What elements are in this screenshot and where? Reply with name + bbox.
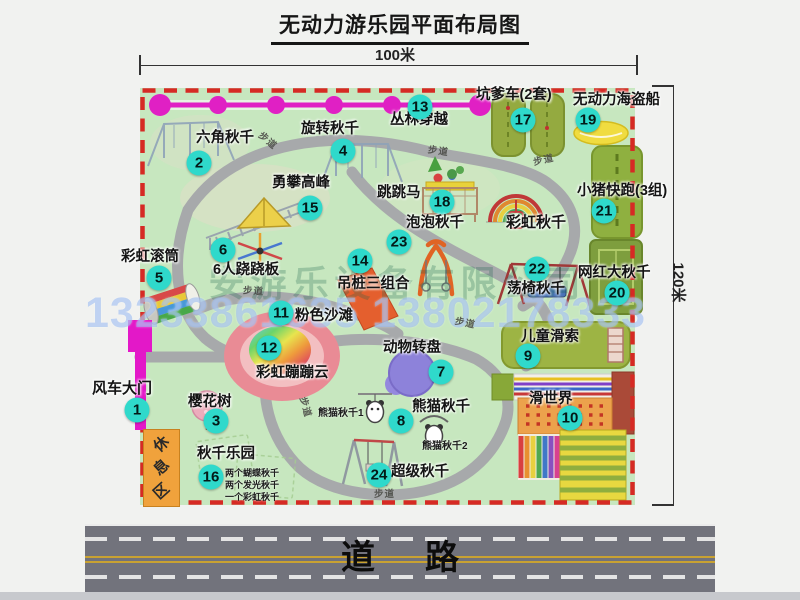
attraction-24-badge: 24 xyxy=(367,463,392,488)
attraction-20-badge: 20 xyxy=(605,281,630,306)
attraction-1-label: 风车大门 xyxy=(92,381,152,397)
attraction-8-badge: 8 xyxy=(389,409,414,434)
attraction-20-label: 网红大秋千 xyxy=(578,266,651,281)
attraction-14-label: 吊桩三组合 xyxy=(337,277,410,292)
trail-label-1: 步道 xyxy=(427,142,450,159)
attraction-21-label: 小猪快跑(3组) xyxy=(577,184,667,199)
attraction-8-label: 熊猫秋千 xyxy=(412,400,470,415)
page-title: 无动力游乐园平面布局图 xyxy=(271,9,529,45)
attraction-12-badge: 12 xyxy=(257,336,282,361)
attraction-5-label: 彩虹滚筒 xyxy=(121,250,179,265)
attraction-19-badge: 19 xyxy=(576,108,601,133)
extra-label-0: 彩虹秋千 xyxy=(506,215,566,231)
sub-label-4: 一个彩虹秋千 xyxy=(225,490,279,503)
trail-label-0: 步道 xyxy=(256,128,281,152)
attraction-16-badge: 16 xyxy=(199,465,224,490)
attraction-18-label: 跳跳马 xyxy=(377,186,421,201)
attraction-11-badge: 11 xyxy=(269,301,294,326)
trail-label-5: 步道 xyxy=(297,395,316,419)
attraction-4-label: 旋转秋千 xyxy=(301,122,359,137)
attraction-23-label: 泡泡秋千 xyxy=(406,216,464,231)
attraction-11-label: 粉色沙滩 xyxy=(295,309,353,324)
attraction-7-label: 动物转盘 xyxy=(383,341,441,356)
attraction-18-badge: 18 xyxy=(430,190,455,215)
attraction-17-badge: 17 xyxy=(511,108,536,133)
attraction-4-badge: 4 xyxy=(331,139,356,164)
road-label: 道路 xyxy=(341,526,509,590)
attraction-17-label: 坑爹车(2套) xyxy=(476,88,552,103)
attraction-1-badge: 1 xyxy=(125,398,150,423)
park-layout-plan: 无动力游乐园平面布局图 100米 120米 xyxy=(0,0,800,600)
attraction-9-badge: 9 xyxy=(516,344,541,369)
width-dimension-tick-left xyxy=(139,55,141,75)
attraction-6-badge: 6 xyxy=(211,238,236,263)
attraction-3-label: 樱花树 xyxy=(188,395,232,410)
attraction-24-label: 超级秋千 xyxy=(391,465,449,480)
attraction-12-label: 彩虹蹦蹦云 xyxy=(256,366,329,381)
attraction-15-label: 勇攀高峰 xyxy=(272,176,330,191)
attraction-22-label: 荡椅秋千 xyxy=(507,282,565,297)
sub-label-0: 熊猫秋千1 xyxy=(318,404,364,419)
attraction-13-badge: 13 xyxy=(408,95,433,120)
attraction-23-badge: 23 xyxy=(387,230,412,255)
height-dimension-tick-bottom xyxy=(652,504,674,506)
attraction-5-badge: 5 xyxy=(147,266,172,291)
height-dimension-label: 120米 xyxy=(669,262,690,302)
attraction-3-badge: 3 xyxy=(204,409,229,434)
attraction-16-label: 秋千乐园 xyxy=(197,447,255,462)
attraction-19-label: 无动力海盗船 xyxy=(573,93,660,108)
trail-label-6: 步道 xyxy=(374,486,395,500)
attraction-6-label: 6人跷跷板 xyxy=(213,263,279,278)
road: 道路 xyxy=(85,524,715,594)
sub-label-1: 熊猫秋千2 xyxy=(422,437,468,452)
width-dimension-label: 100米 xyxy=(340,44,450,65)
attraction-2-label: 六角秋千 xyxy=(196,131,254,146)
attraction-2-badge: 2 xyxy=(187,151,212,176)
height-dimension-tick-top xyxy=(652,85,674,87)
trail-label-4: 步道 xyxy=(454,313,477,331)
trail-label-3: 步道 xyxy=(243,282,265,297)
attraction-15-badge: 15 xyxy=(298,196,323,221)
map-markers: 风车大门1六角秋千2樱花树3旋转秋千4彩虹滚筒56人跷跷板6动物转盘7熊猫秋千8… xyxy=(140,88,635,505)
attraction-7-badge: 7 xyxy=(429,360,454,385)
attraction-10-badge: 10 xyxy=(558,406,583,431)
park-map: 安游乐设备有限公司 13233861635 13802178333 休息区 风车… xyxy=(140,88,635,505)
width-dimension-line xyxy=(140,65,637,66)
trail-label-2: 步道 xyxy=(532,150,555,168)
attraction-22-badge: 22 xyxy=(525,257,550,282)
below-road-strip xyxy=(0,592,800,600)
attraction-14-badge: 14 xyxy=(348,249,373,274)
attraction-21-badge: 21 xyxy=(592,199,617,224)
width-dimension-tick-right xyxy=(636,55,638,75)
